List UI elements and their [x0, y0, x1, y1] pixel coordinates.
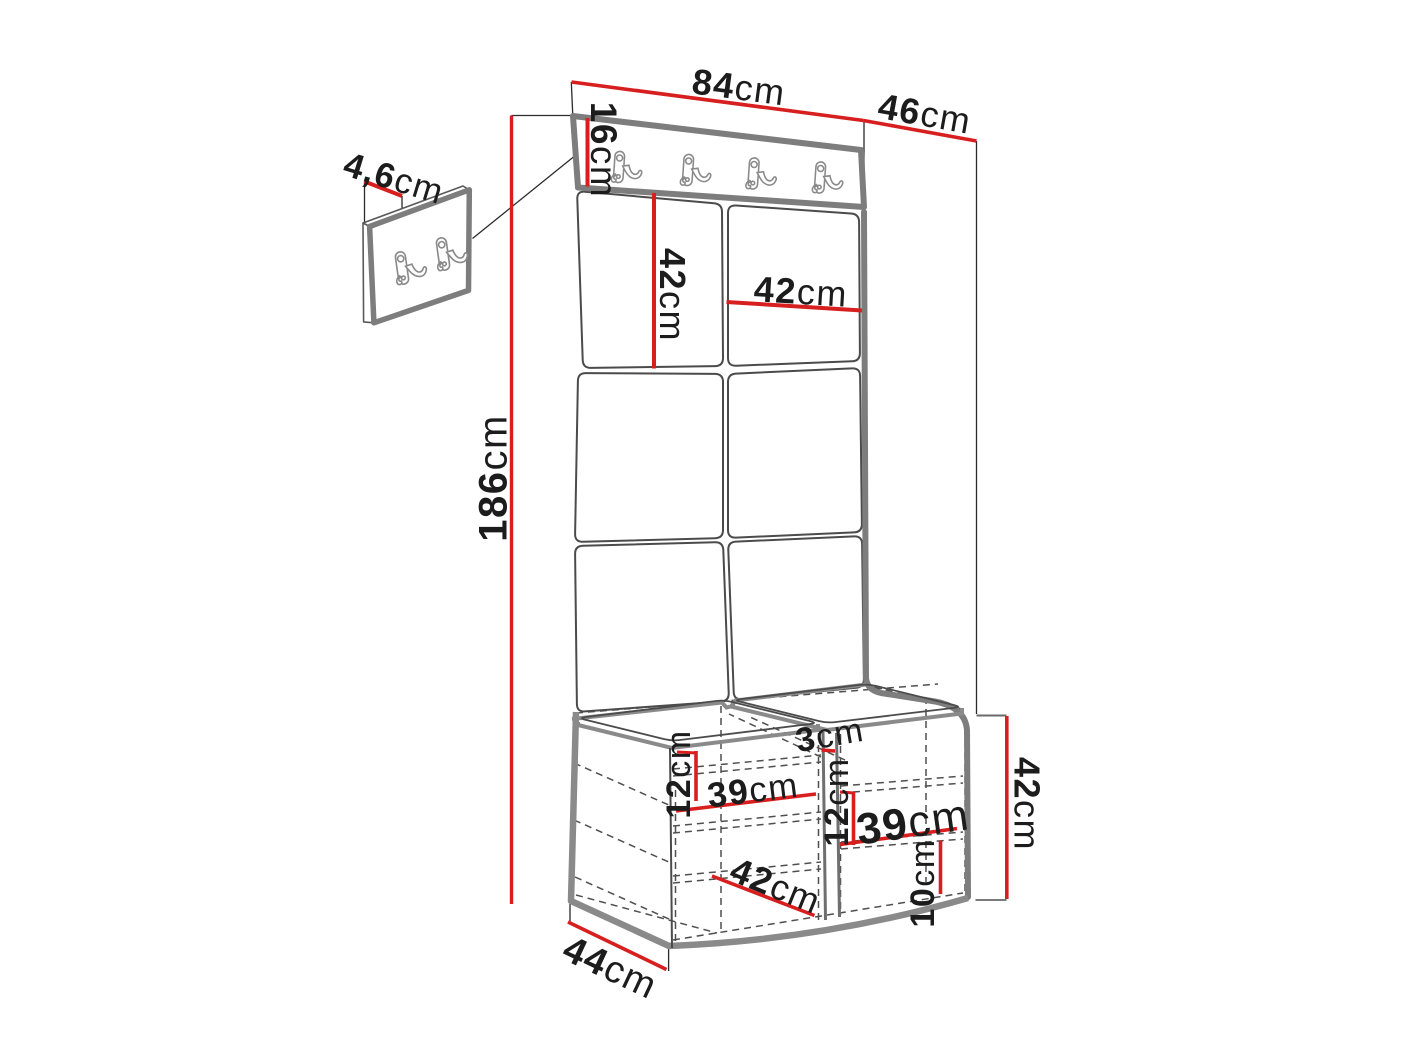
svg-text:42cm: 42cm: [753, 268, 849, 315]
svg-text:42cm: 42cm: [653, 248, 694, 342]
svg-text:42cm: 42cm: [1007, 757, 1048, 851]
svg-text:186cm: 186cm: [472, 414, 516, 542]
svg-text:16cm: 16cm: [584, 102, 625, 198]
svg-text:10cm: 10cm: [904, 838, 942, 927]
svg-text:12cm: 12cm: [660, 729, 698, 818]
svg-text:12cm: 12cm: [818, 757, 856, 846]
